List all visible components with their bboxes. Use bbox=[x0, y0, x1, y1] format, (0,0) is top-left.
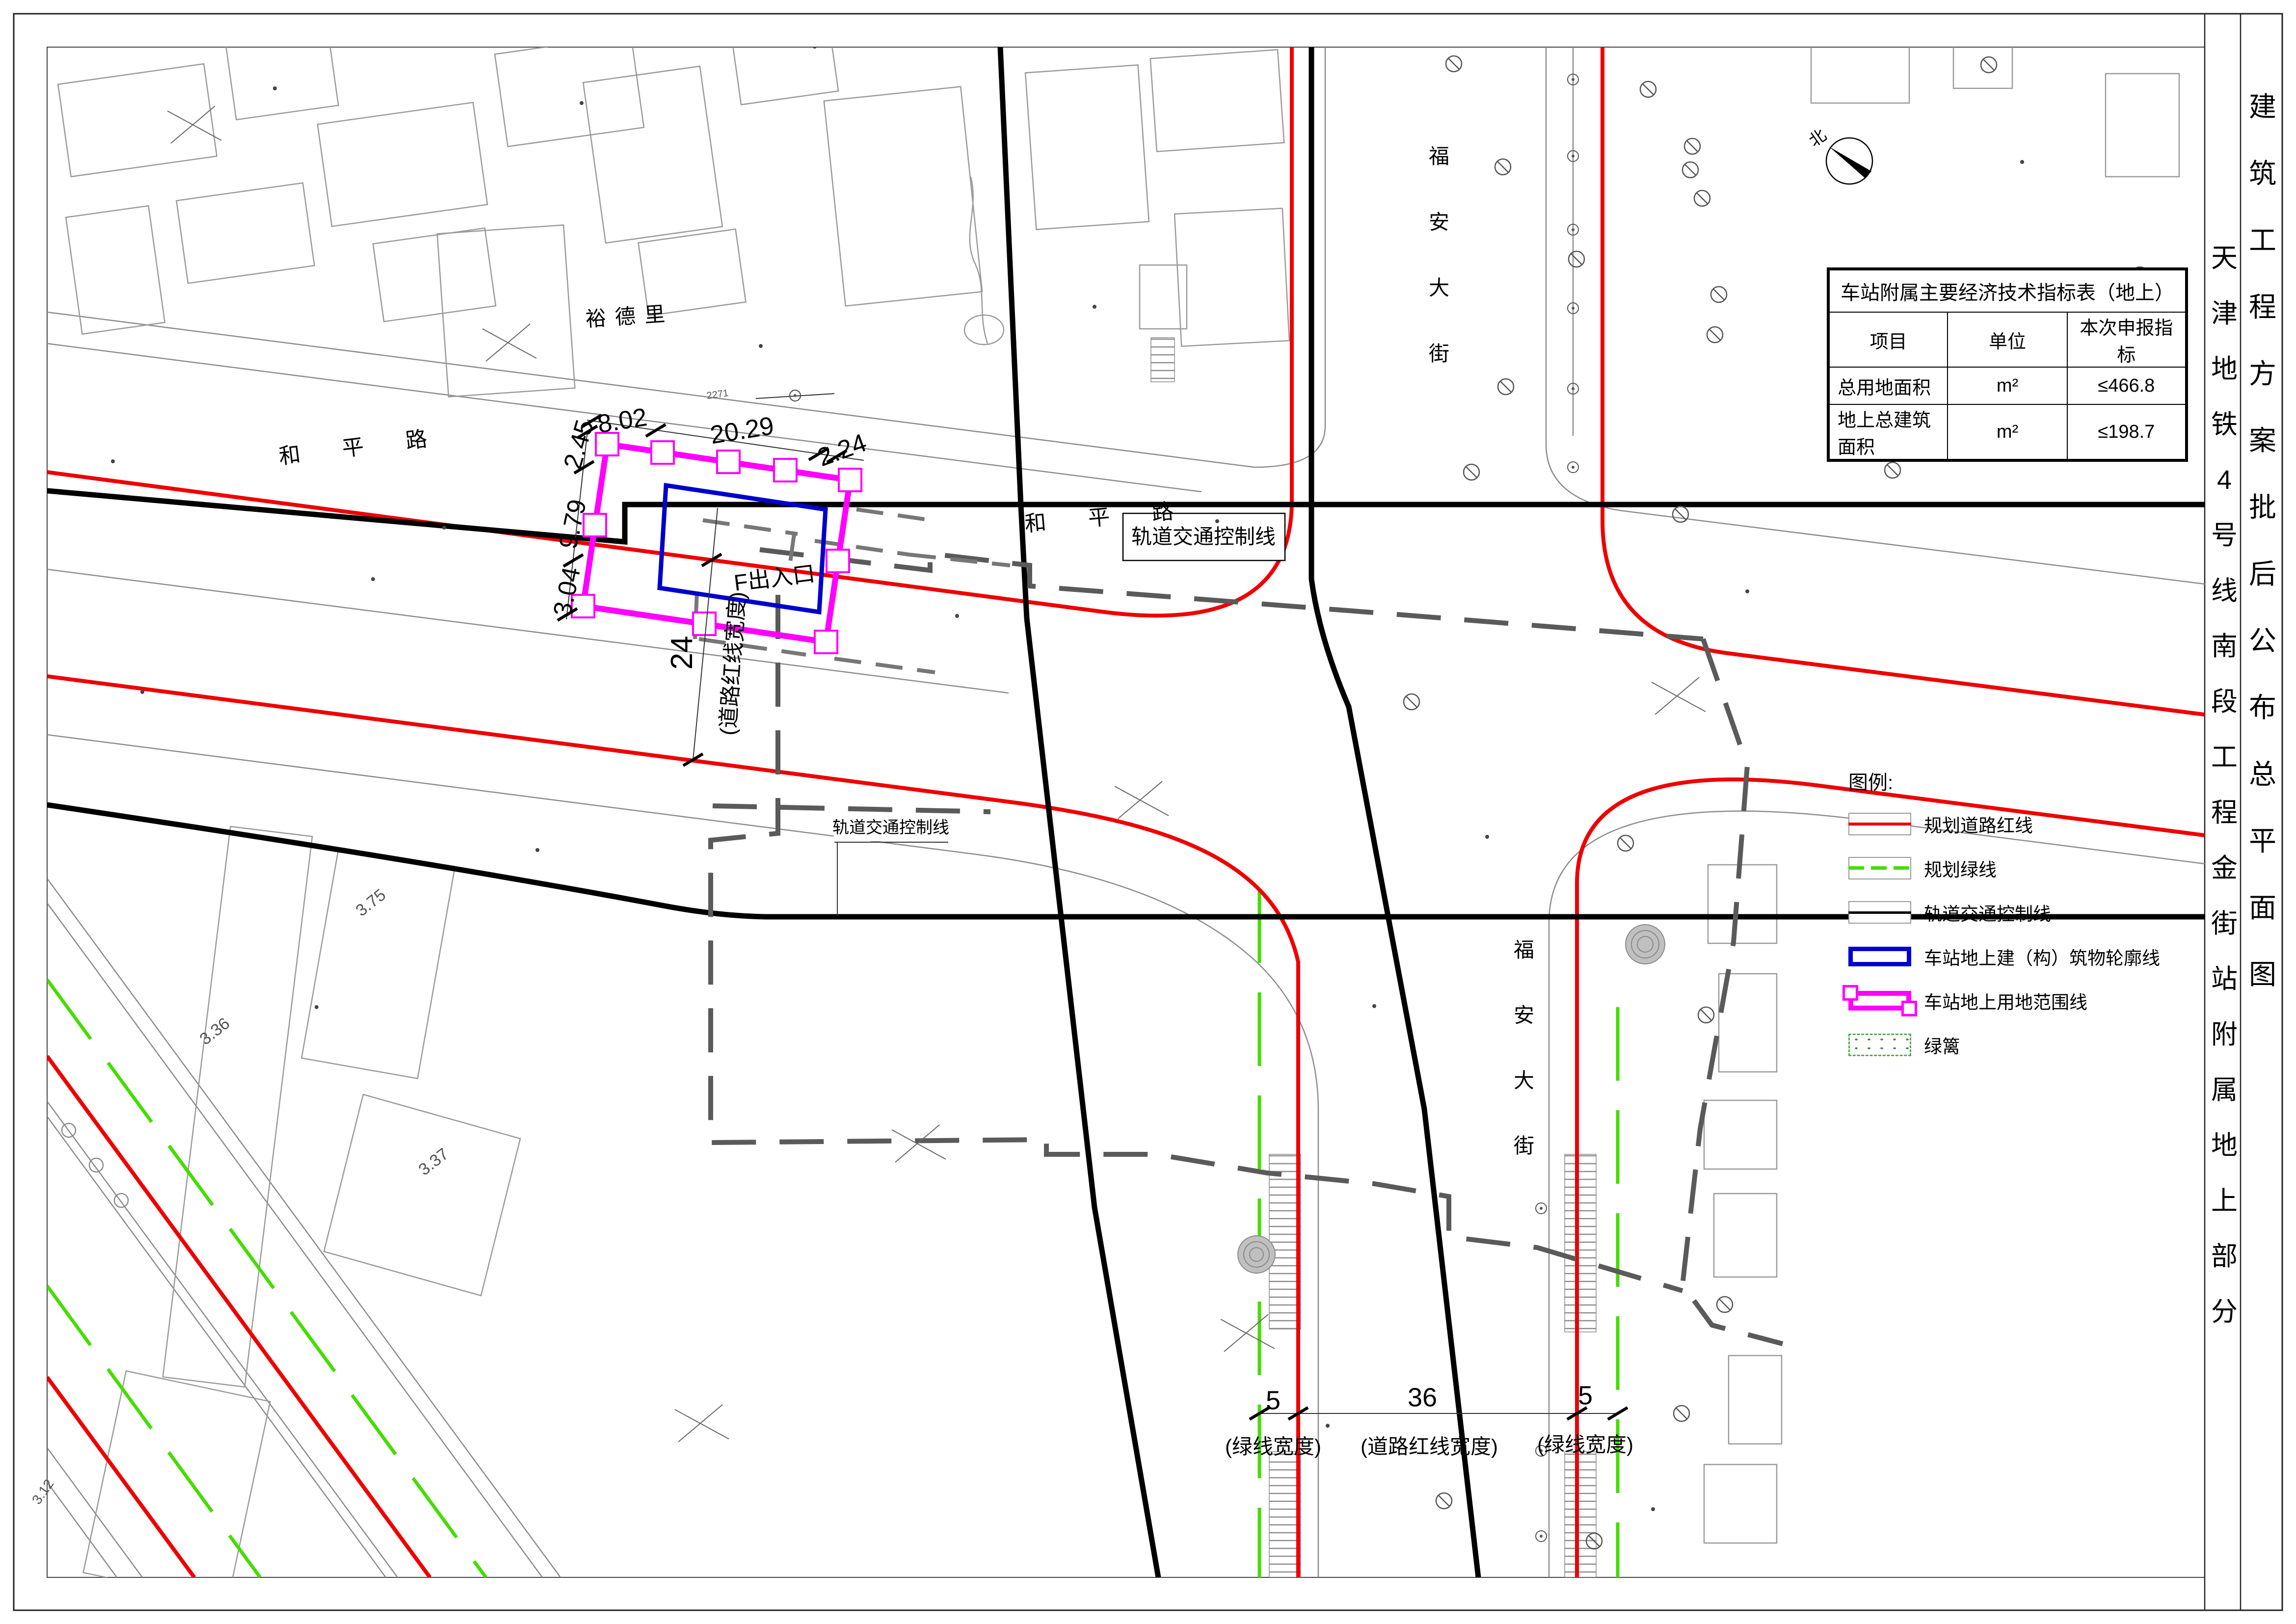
table-cell: m² bbox=[1948, 404, 2067, 460]
map-label: 24 bbox=[666, 636, 699, 670]
title-char: 附 bbox=[2209, 1007, 2240, 1063]
legend-item: 规划道路红线 bbox=[1848, 812, 2192, 836]
dimension-lines bbox=[566, 390, 1618, 1413]
legend-item: 车站地上用地范围线 bbox=[1848, 988, 2192, 1013]
red-line-icon bbox=[1848, 813, 1911, 835]
table-cell: 地上总建筑面积 bbox=[1828, 404, 1948, 460]
title-char: 总 bbox=[2247, 741, 2278, 808]
title-char: 面 bbox=[2247, 875, 2278, 941]
map-dot bbox=[1326, 1424, 1330, 1428]
title-char: 铁 bbox=[2209, 397, 2240, 453]
map-label: (道路红线宽度) bbox=[1361, 1436, 1498, 1458]
parcel-dashed-boundary bbox=[711, 550, 1783, 1344]
legend-item: 绿篱 bbox=[1848, 1033, 2192, 1057]
title-char: 建 bbox=[2247, 74, 2278, 140]
legend: 图例: 规划道路红线规划绿线轨道交通控制线车站地上建（构）筑物轮廓线车站地上用地… bbox=[1848, 767, 2192, 1077]
magenta-rect-icon bbox=[1848, 991, 1911, 1011]
table-cell: ≤466.8 bbox=[2067, 367, 2187, 404]
title-char: 程 bbox=[2247, 274, 2278, 341]
map-label: 福安大街 bbox=[1429, 124, 1449, 387]
table-cell: m² bbox=[1948, 367, 2067, 404]
map-dot bbox=[1372, 1004, 1376, 1008]
map-dot bbox=[442, 526, 446, 530]
hedge-icon bbox=[1848, 1034, 1911, 1056]
blue-rect-icon bbox=[1848, 947, 1911, 966]
table-cell: 总用地面积 bbox=[1828, 367, 1948, 404]
north-arrow-icon bbox=[1826, 138, 1872, 184]
table-header-cell: 本次申报指标 bbox=[2067, 312, 2187, 367]
map-dot bbox=[2020, 160, 2024, 164]
drawing-sheet: 车站附属主要经济技术指标表（地上）项目单位本次申报指标总用地面积m²≤466.8… bbox=[0, 0, 2296, 1624]
map-dot bbox=[315, 1005, 319, 1009]
title-char: 号 bbox=[2209, 508, 2240, 563]
title-char: 天 bbox=[2209, 231, 2240, 286]
title-char: 批 bbox=[2247, 474, 2278, 541]
legend-item-label: 绿篱 bbox=[1924, 1032, 1960, 1058]
title-char: 分 bbox=[2209, 1284, 2240, 1340]
legend-item-label: 车站地上建（构）筑物轮廓线 bbox=[1924, 943, 2160, 970]
survey-cross-icon bbox=[675, 1410, 729, 1439]
drawing-title-vertical: 建筑工程方案批后公布总平面图 bbox=[2247, 74, 2278, 1008]
map-label: 5 bbox=[1266, 1386, 1281, 1415]
title-char: 图 bbox=[2247, 941, 2278, 1008]
title-char: 部 bbox=[2209, 1229, 2240, 1284]
map-label: (绿线宽度) bbox=[1537, 1434, 1633, 1456]
map-label: 36 bbox=[1408, 1383, 1437, 1412]
legend-item-label: 规划绿线 bbox=[1924, 855, 1997, 881]
survey-cross-icon bbox=[1221, 1319, 1275, 1349]
legend-title: 图例: bbox=[1848, 767, 2192, 795]
legend-item: 轨道交通控制线 bbox=[1848, 900, 2192, 925]
map-dot bbox=[955, 614, 959, 618]
title-char: 南 bbox=[2209, 619, 2240, 674]
title-char: 后 bbox=[2247, 541, 2278, 608]
map-dot bbox=[580, 101, 584, 105]
map-label: 轨道交通控制线 bbox=[832, 819, 949, 837]
map-label: 福安大街 bbox=[1514, 917, 1534, 1178]
title-char: 程 bbox=[2209, 785, 2240, 841]
table-cell: ≤198.7 bbox=[2067, 404, 2187, 460]
legend-item-label: 车站地上用地范围线 bbox=[1924, 987, 2087, 1014]
map-dot bbox=[535, 848, 539, 852]
map-label: (绿线宽度) bbox=[1225, 1436, 1321, 1458]
title-char: 工 bbox=[2209, 730, 2240, 785]
title-char: 布 bbox=[2247, 674, 2278, 741]
map-dot bbox=[1093, 305, 1096, 309]
map-dot bbox=[140, 690, 144, 694]
title-char: 工 bbox=[2247, 207, 2278, 274]
legend-item: 规划绿线 bbox=[1848, 856, 2192, 880]
map-label: 轨道交通控制线 bbox=[1131, 526, 1276, 548]
map-dot bbox=[273, 86, 277, 90]
project-title-vertical: 天津地铁4号线南段工程金街站附属地上部分 bbox=[2209, 231, 2240, 1340]
indicator-table: 车站附属主要经济技术指标表（地上）项目单位本次申报指标总用地面积m²≤466.8… bbox=[1827, 267, 2188, 462]
map-dot bbox=[1745, 589, 1749, 593]
title-char: 街 bbox=[2209, 896, 2240, 952]
title-char: 津 bbox=[2209, 286, 2240, 342]
legend-item-label: 轨道交通控制线 bbox=[1924, 899, 2051, 926]
title-char: 地 bbox=[2209, 1118, 2240, 1173]
table-title: 车站附属主要经济技术指标表（地上） bbox=[1828, 269, 2187, 312]
map-dot bbox=[1651, 1507, 1655, 1511]
legend-items: 规划道路红线规划绿线轨道交通控制线车站地上建（构）筑物轮廓线车站地上用地范围线绿… bbox=[1848, 812, 2192, 1057]
title-char: 站 bbox=[2209, 952, 2240, 1007]
table-header-cell: 单位 bbox=[1948, 312, 2067, 367]
title-char: 属 bbox=[2209, 1063, 2240, 1118]
table-header-cell: 项目 bbox=[1828, 312, 1948, 367]
title-char: 公 bbox=[2247, 608, 2278, 674]
survey-cross-icon bbox=[482, 329, 536, 358]
survey-cross-icon bbox=[892, 1130, 946, 1159]
map-dot bbox=[111, 459, 115, 463]
title-char: 金 bbox=[2209, 841, 2240, 896]
legend-item: 车站地上建（构）筑物轮廓线 bbox=[1848, 944, 2192, 969]
label-callout-boxes bbox=[833, 513, 1285, 916]
survey-cross-icon bbox=[167, 111, 221, 140]
title-char: 上 bbox=[2209, 1173, 2240, 1229]
title-char: 4 bbox=[2209, 453, 2240, 508]
title-char: 筑 bbox=[2247, 140, 2278, 207]
title-char: 案 bbox=[2247, 407, 2278, 474]
map-dot bbox=[371, 577, 375, 581]
map-label: 5 bbox=[1578, 1381, 1593, 1410]
title-char: 方 bbox=[2247, 341, 2278, 407]
black-line-icon bbox=[1848, 901, 1911, 924]
planning-green-lines bbox=[47, 889, 1618, 1577]
green-dash-icon bbox=[1848, 857, 1911, 879]
legend-item-label: 规划道路红线 bbox=[1924, 811, 2033, 837]
title-char: 平 bbox=[2247, 808, 2278, 875]
survey-cross-icon bbox=[1115, 786, 1169, 816]
map-dot bbox=[759, 344, 763, 348]
survey-cross-icon bbox=[1652, 682, 1706, 712]
title-char: 线 bbox=[2209, 563, 2240, 619]
map-dot bbox=[1485, 835, 1489, 839]
title-char: 地 bbox=[2209, 342, 2240, 397]
title-char: 段 bbox=[2209, 674, 2240, 730]
